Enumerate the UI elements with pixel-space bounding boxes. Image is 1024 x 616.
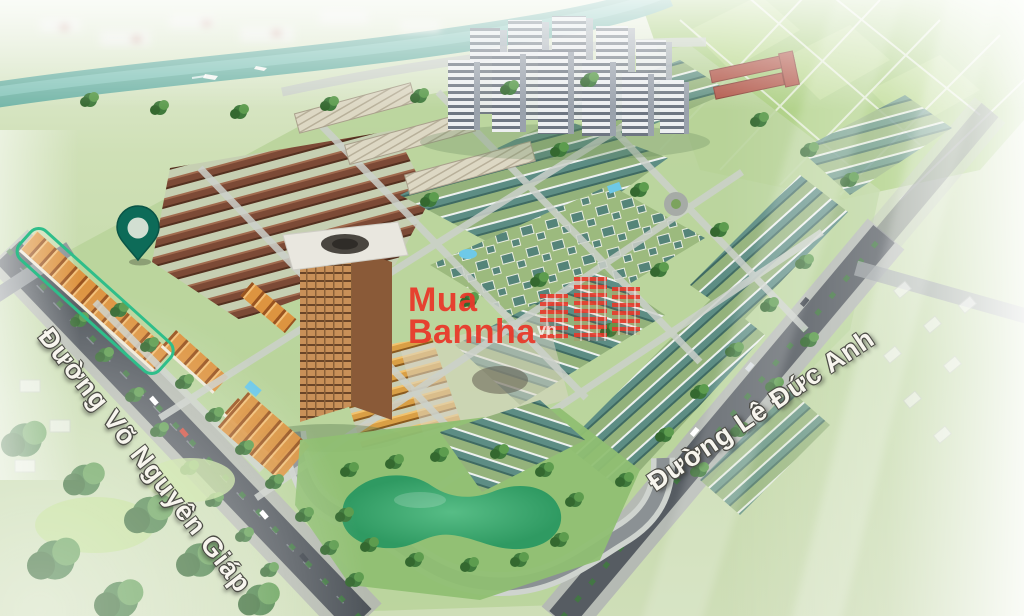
watermark-domain-suffix: .vn bbox=[532, 320, 557, 340]
tower-side-face bbox=[352, 250, 392, 420]
watermark-brand-text: Mua Bannha bbox=[408, 284, 536, 349]
watermark-line1: Mua bbox=[408, 284, 536, 316]
logo-tower-middle bbox=[574, 277, 607, 341]
roundabout bbox=[664, 192, 688, 216]
logo-tower-right bbox=[612, 287, 640, 335]
aerial-masterplan-render: Đường Võ Nguyên Giáp Đường Lê Đức Anh Mu… bbox=[0, 0, 1024, 616]
watermark-line2: Bannha bbox=[408, 316, 536, 348]
tower-front-face bbox=[300, 250, 352, 422]
